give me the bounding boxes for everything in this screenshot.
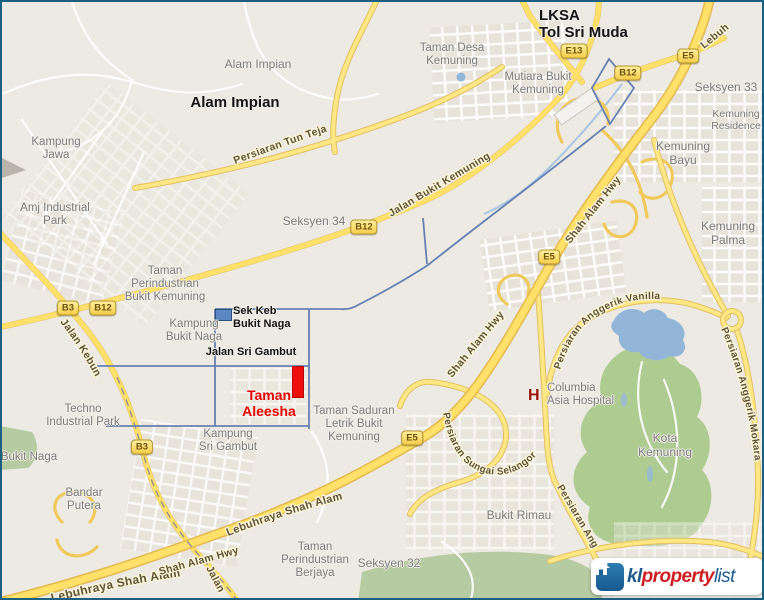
route-badge-e13: E13 xyxy=(561,44,588,59)
label-seksyen-33: Seksyen 33 xyxy=(695,81,758,95)
label-taman-saduran: Taman SaduranLetrik BukitKemuning xyxy=(313,405,394,444)
brand-suffix: list xyxy=(714,566,735,587)
label-taman-perindustrian-bukit-kemuning: TamanPerindustrianBukit Kemuning xyxy=(125,265,206,304)
label-alam-impian-small: Alam Impian xyxy=(225,58,292,72)
route-badge-b3: B3 xyxy=(131,440,153,455)
label-kemuning-residence: KemuningResidence xyxy=(711,109,761,133)
label-kampung-bukit-naga: KampungBukit Naga xyxy=(166,318,222,344)
label-sek-keb-bukit-naga: Sek KebBukit Naga xyxy=(233,305,290,330)
route-badge-b12: B12 xyxy=(614,66,641,81)
label-bukit-rimau: Bukit Rimau xyxy=(487,509,552,523)
route-badge-e5: E5 xyxy=(401,431,423,446)
label-taman-perindustrian-berjaya: TamanPerindustrianBerjaya xyxy=(281,541,349,580)
watermark-text: klpropertylist xyxy=(627,566,735,588)
label-techno-industrial-park: TechnoIndustrial Park xyxy=(46,403,120,429)
brand-prefix: kl xyxy=(627,566,642,587)
label-kemuning-bayu: KemuningBayu xyxy=(656,140,710,167)
route-badge-e5: E5 xyxy=(677,49,699,64)
label-amj-industrial-park: Amj IndustrialPark xyxy=(20,202,90,228)
label-taman-desa-kemuning: Taman DesaKemuning xyxy=(420,42,485,68)
route-badge-e5: E5 xyxy=(538,250,560,265)
brand-mid: property xyxy=(642,566,714,587)
labels-layer: H LKSATol Sri MudaTaman DesaKemuningMuti… xyxy=(2,2,762,598)
label-jalan-sri-gambut: Jalan Sri Gambut xyxy=(206,346,296,359)
label-kampung-sri-gambut: KampungSri Gambut xyxy=(199,428,257,454)
house-icon xyxy=(596,563,624,591)
route-badge-b12: B12 xyxy=(89,301,116,316)
route-badge-b12: B12 xyxy=(350,220,377,235)
label-seksyen-34: Seksyen 34 xyxy=(283,215,346,229)
label-lksa-tol-sri-muda: LKSATol Sri Muda xyxy=(539,7,628,41)
label-kemuning-palma: KemuningPalma xyxy=(701,220,755,247)
label-kampung-jawa: KampungJawa xyxy=(31,136,80,162)
label-kota-kemuning: KotaKemuning xyxy=(638,432,692,459)
label-alam-impian-bold: Alam Impian xyxy=(190,94,279,111)
hospital-icon: H xyxy=(528,387,540,405)
label-columbia-asia-hospital: ColumbiaAsia Hospital xyxy=(547,382,614,408)
label-seksyen-32: Seksyen 32 xyxy=(358,557,421,571)
watermark: klpropertylist xyxy=(591,558,763,595)
route-badge-b3: B3 xyxy=(57,301,79,316)
map-canvas[interactable]: Persiaran Tun Teja Jalan Bukit Kemuning … xyxy=(0,0,764,600)
label-taman-aleesha: TamanAleesha xyxy=(242,388,296,420)
label-mutiara-bukit-kemuning: Mutiara BukitKemuning xyxy=(504,71,571,97)
label-bandar-putera: BandarPutera xyxy=(65,487,102,513)
label-bukit-naga: Bukit Naga xyxy=(1,451,57,464)
